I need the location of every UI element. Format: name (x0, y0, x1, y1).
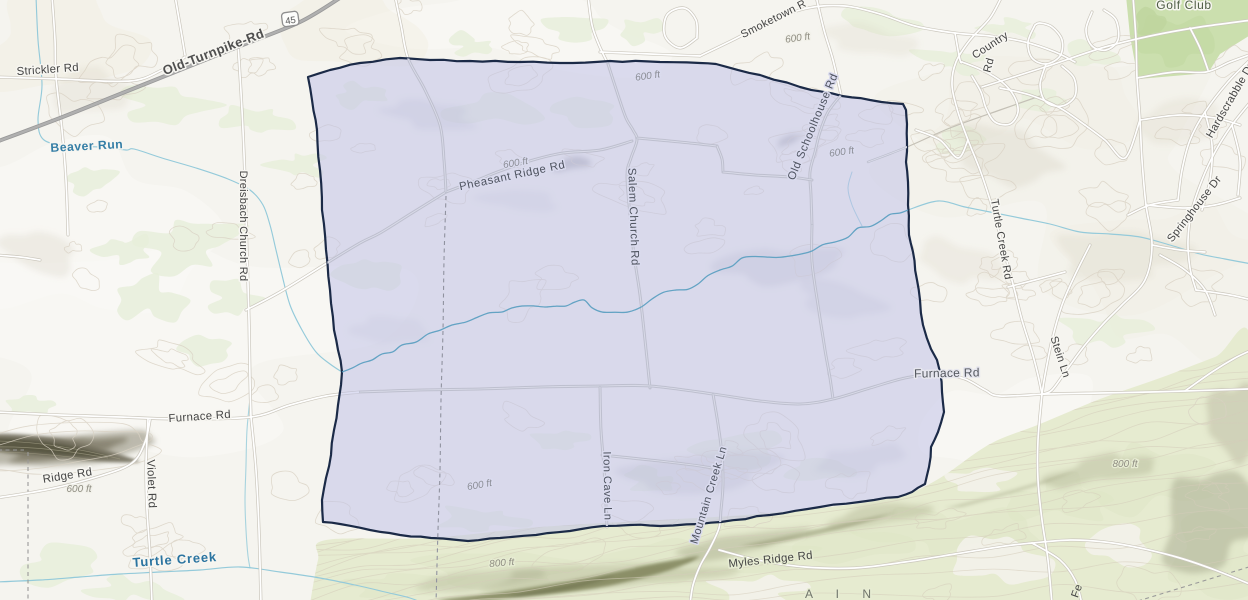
svg-text:600 ft: 600 ft (66, 484, 92, 495)
svg-text:Golf Club: Golf Club (1156, 0, 1211, 12)
svg-text:800 ft: 800 ft (1112, 459, 1138, 470)
svg-text:Dreisbach Church Rd: Dreisbach Church Rd (237, 171, 249, 282)
svg-text:800 ft: 800 ft (489, 557, 516, 570)
svg-text:Iron Cave Ln: Iron Cave Ln (600, 451, 613, 520)
svg-text:Furnace Rd: Furnace Rd (914, 365, 980, 380)
svg-text:A I N: A I N (805, 587, 881, 600)
svg-text:45: 45 (285, 15, 297, 27)
svg-text:Violet Rd: Violet Rd (144, 459, 158, 508)
